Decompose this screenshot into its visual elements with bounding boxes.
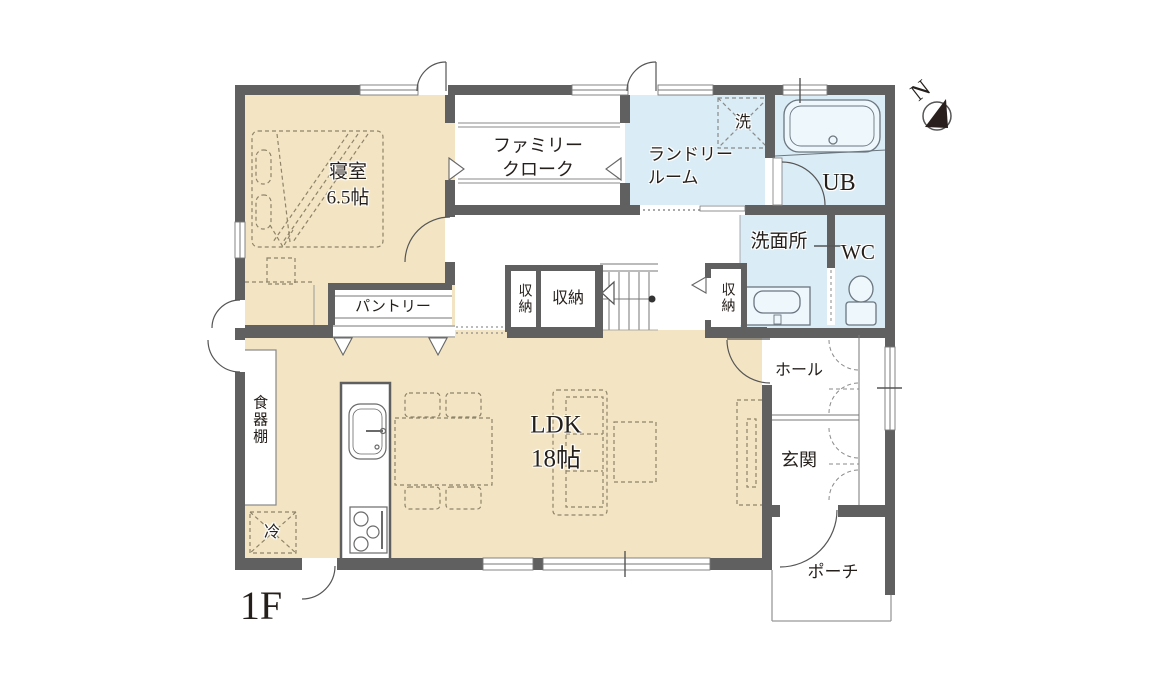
room-label-bedroom: 寝室 6.5帖 [327,159,370,210]
floor-label: 1F [240,579,282,633]
room-label-family-cloak: ファミリー クローク [493,134,583,183]
fixture-label-washer: 洗 [735,112,751,134]
walkthrough-arrow [606,158,621,180]
room-label-hall: ホール [775,360,823,382]
room-label-porch: ポーチ [808,562,859,585]
closet-label-storage2: 収納 [552,288,584,310]
room-label-ldk: LDK 18帖 [530,408,581,476]
walkthrough-arrow [449,158,464,180]
bathtub [775,100,886,156]
floor-plan-drawing [0,0,1160,686]
closet-arrow [692,277,706,293]
room-label-wc: WC [841,238,875,266]
kitchen-back-door [302,566,335,599]
floor-plan: 寝室 6.5帖 ファミリー クローク ランドリー ルーム 洗 UB 洗面所 WC… [0,0,1160,686]
room-label-entrance: 玄関 [781,448,817,472]
room-label-washroom: 洗面所 [750,229,807,255]
closet-label-storage1: 収納 [514,283,533,315]
room-label-unit-bath: UB [822,167,855,199]
washbasin [746,287,810,325]
room-label-laundry: ランドリー ルーム [648,144,733,190]
fixture-label-cupboard: 食器棚 [249,395,269,446]
room-label-pantry: パントリー [355,297,431,317]
closet-label-storage3: 収納 [717,282,736,314]
entrance-door [780,510,837,567]
fixture-label-fridge: 冷 [264,522,280,544]
